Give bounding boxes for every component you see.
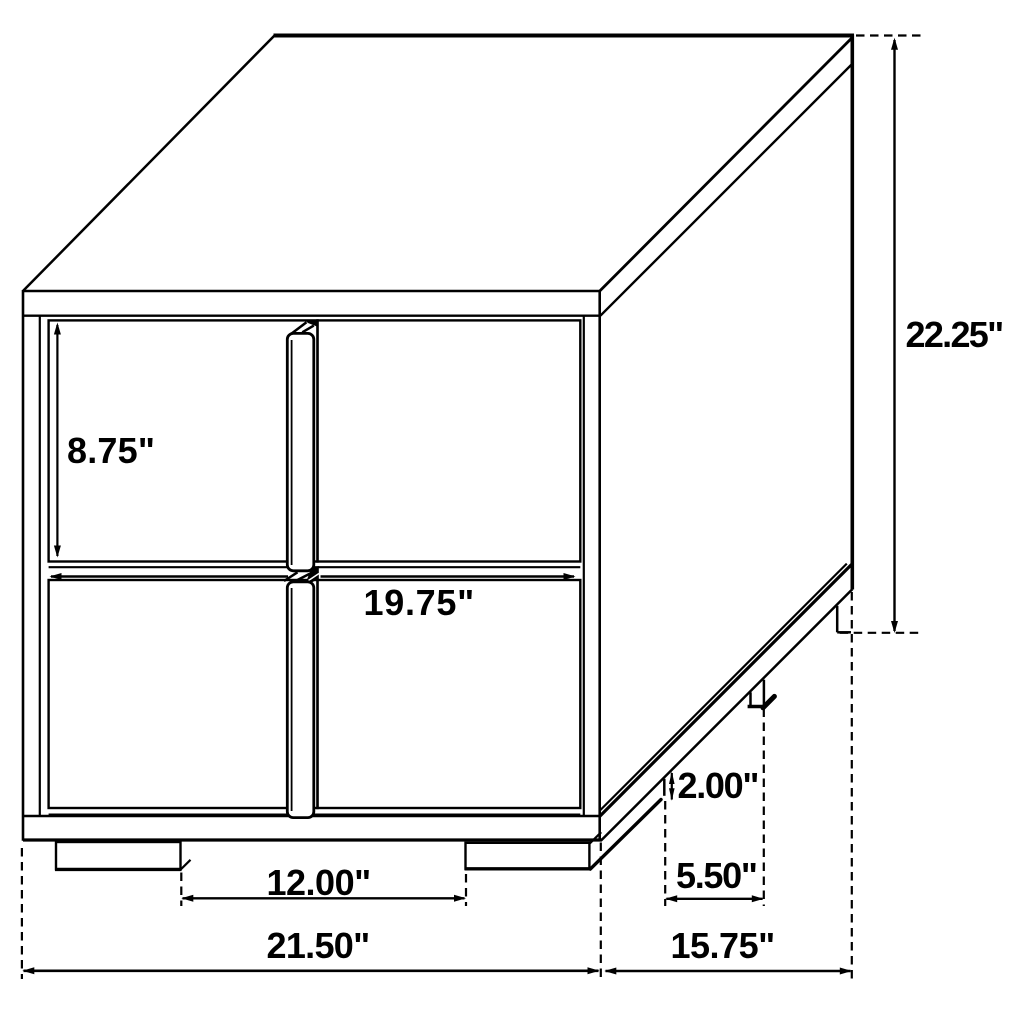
svg-text:12.00": 12.00" <box>267 862 371 903</box>
svg-text:19.75": 19.75" <box>364 582 475 623</box>
svg-text:2.00": 2.00" <box>678 765 759 806</box>
svg-text:8.75": 8.75" <box>67 430 155 471</box>
svg-text:22.25": 22.25" <box>906 314 1003 355</box>
svg-text:15.75": 15.75" <box>671 925 775 966</box>
svg-text:5.50": 5.50" <box>676 855 757 896</box>
svg-text:21.50": 21.50" <box>267 925 370 966</box>
